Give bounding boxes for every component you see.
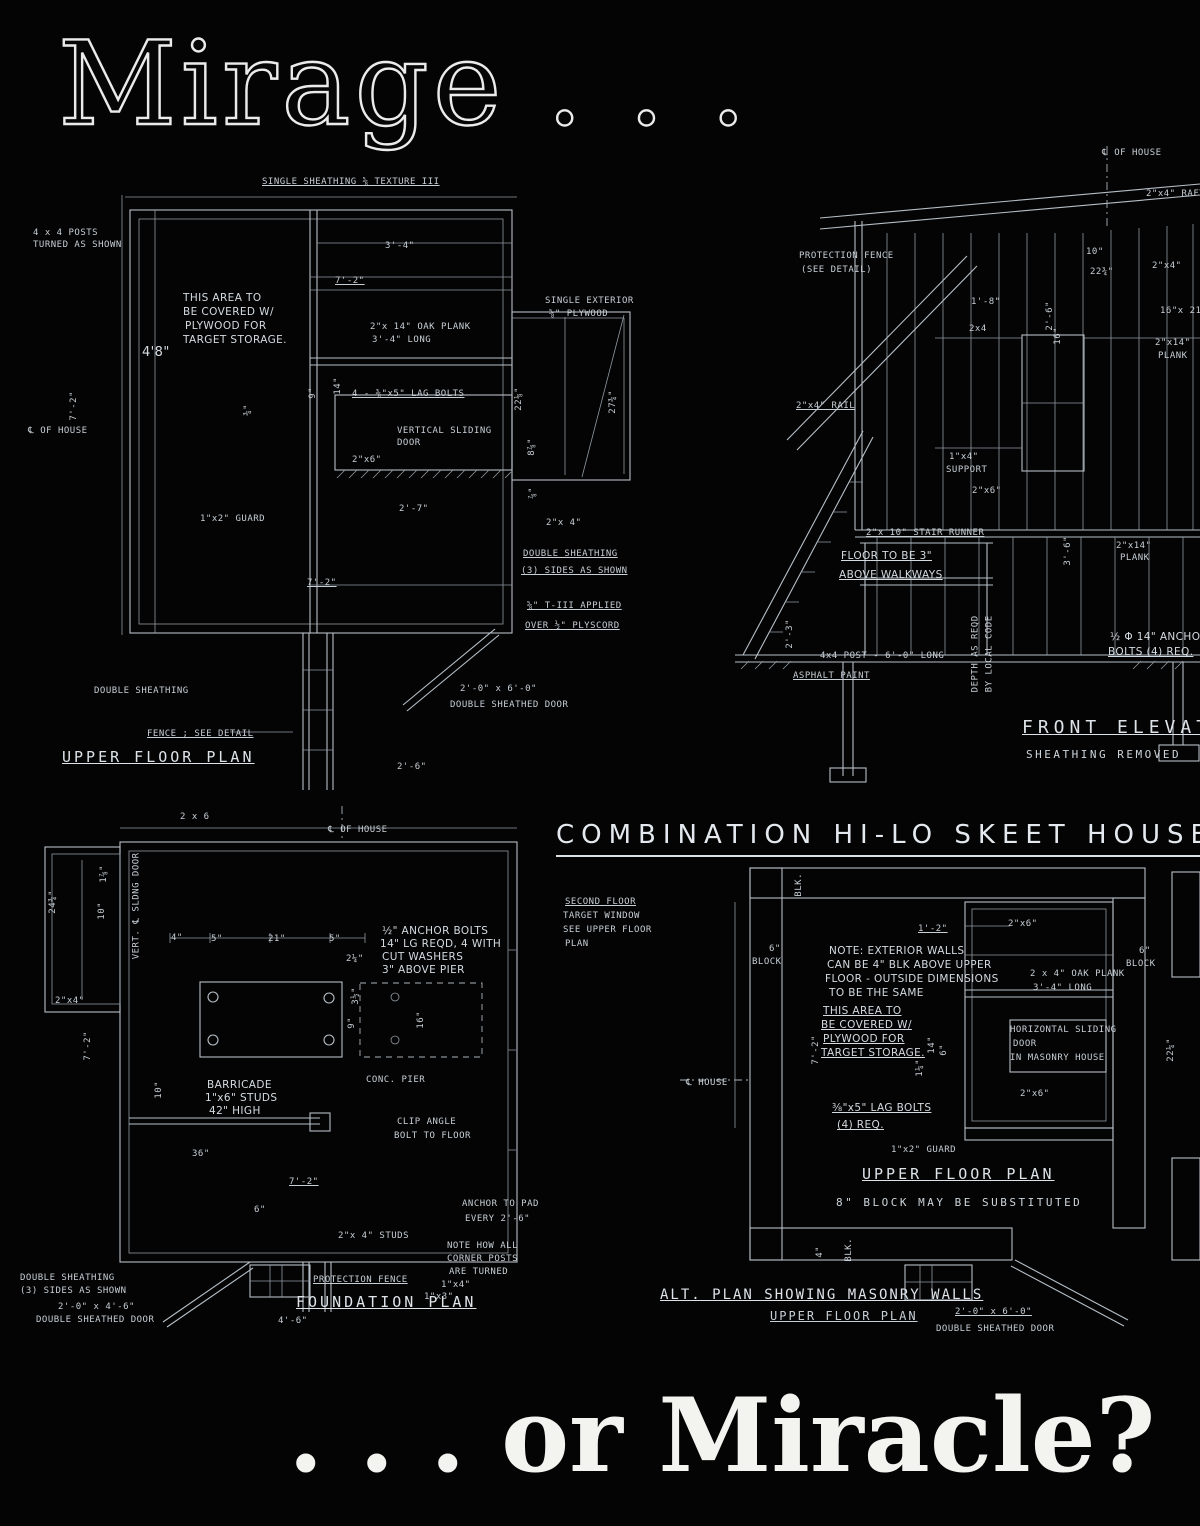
annotation-label: PROTECTION FENCE xyxy=(799,251,894,263)
annotation-label: 2¼" xyxy=(346,954,364,966)
annotation-label: 5" xyxy=(329,934,341,946)
annotation-label: (SEE DETAIL) xyxy=(801,265,872,277)
foundation-plan-drawing xyxy=(20,800,665,1340)
annotation-label: 4'8" xyxy=(142,345,170,362)
annotation-label: 2"x4" RAFT xyxy=(1146,189,1200,201)
annotation-label: ABOVE WALKWAYS xyxy=(839,569,943,583)
annotation-label: 7'-2" xyxy=(307,578,337,590)
annotation-label: EVERY 2'-6" xyxy=(465,1214,530,1226)
annotation-label: 3'-4" LONG xyxy=(1033,983,1092,995)
annotation-label: 10" xyxy=(1086,247,1104,259)
annotation-label: TO BE THE SAME xyxy=(829,987,924,1001)
annotation-label: 27¾" xyxy=(608,390,620,414)
annotation-label: 3'-6" xyxy=(1063,536,1075,566)
annotation-label: 4x4 POST - 6'-0" LONG xyxy=(820,651,944,663)
annotation-label: DOUBLE SHEATHED DOOR xyxy=(36,1315,154,1327)
annotation-label: BLK. xyxy=(844,1238,856,1262)
annotation-label: 22¼" xyxy=(1166,1038,1178,1062)
annotation-label: TARGET STORAGE. xyxy=(183,334,287,348)
annotation-label: 7'-2" xyxy=(335,276,365,288)
annotation-label: 14" xyxy=(333,377,345,395)
page-title-top: Mirage . . . xyxy=(46,2,766,162)
annotation-label: 1"x2" GUARD xyxy=(200,514,265,526)
annotation-label: CORNER POSTS xyxy=(447,1254,518,1266)
annotation-label: FENCE ; SEE DETAIL xyxy=(147,729,254,741)
annotation-label: 9" xyxy=(308,387,320,399)
annotation-label: 2'-0" x 6'-0" xyxy=(460,684,537,696)
annotation-label: ℄ HOUSE xyxy=(686,1078,728,1090)
annotation-label: DOUBLE SHEATHING xyxy=(523,549,618,561)
annotation-label: 16" xyxy=(1053,327,1065,345)
annotation-label: 36" xyxy=(192,1149,210,1161)
annotation-label: 2'-7" xyxy=(399,504,429,516)
annotation-label: SUPPORT xyxy=(946,465,987,477)
page-title-bottom: . . . or Miracle? xyxy=(288,1376,1155,1496)
annotation-label: 3½" xyxy=(351,987,363,1005)
annotation-label: SINGLE EXTERIOR xyxy=(545,296,634,308)
caption-upper-floor-plan: UPPER FLOOR PLAN xyxy=(62,748,255,768)
annotation-label: ¾" xyxy=(243,404,255,416)
annotation-label: BLOCK xyxy=(1126,959,1156,971)
annotation-label: TARGET STORAGE. xyxy=(821,1047,925,1061)
annotation-label: 24¾" xyxy=(48,890,60,914)
annotation-label: 14" LG REQD, 4 WITH xyxy=(380,938,501,952)
caption-front-elevation: FRONT ELEVATION xyxy=(1022,716,1200,739)
annotation-label: 2"x14" xyxy=(1116,541,1152,553)
blueprint-page: Mirage . . . xyxy=(0,0,1200,1526)
annotation-label: IN MASONRY HOUSE xyxy=(1010,1053,1105,1065)
annotation-label: PLANK xyxy=(1120,553,1150,565)
annotation-label: 8⅞" xyxy=(527,438,539,456)
annotation-label: 21" xyxy=(268,934,286,946)
annotation-label: 2"x6" xyxy=(352,455,382,467)
annotation-label: 3" ABOVE PIER xyxy=(382,964,465,978)
annotation-label: 2"x4" xyxy=(55,996,85,1008)
annotation-label: CAN BE 4" BLK ABOVE UPPER xyxy=(827,959,992,973)
annotation-label: 2'-0" x 4'-6" xyxy=(58,1302,135,1314)
annotation-label: 4'-6" xyxy=(278,1316,308,1328)
annotation-label: SINGLE SHEATHING ⅝ TEXTURE III xyxy=(262,177,440,189)
annotation-label: ASPHALT PAINT xyxy=(793,671,870,683)
subcaption-sheathing-removed: SHEATHING REMOVED xyxy=(1026,748,1181,762)
annotation-label: 16" xyxy=(416,1011,428,1029)
annotation-label: 16"x 21¾" D xyxy=(1160,306,1200,318)
annotation-label: BLOCK xyxy=(752,957,782,969)
drawing-heading: COMBINATION HI-LO SKEET HOUSE xyxy=(556,820,1200,857)
annotation-label: VERT. ℄ SLDNG DOOR xyxy=(132,852,144,959)
annotation-label: NOTE: EXTERIOR WALLS xyxy=(829,945,964,959)
annotation-label: 9" xyxy=(347,1017,359,1029)
annotation-label: 10" xyxy=(154,1081,166,1099)
annotation-label: 1"x6" STUDS xyxy=(205,1092,278,1106)
annotation-label: 2"x 4" xyxy=(546,518,582,530)
annotation-label: ½" ANCHOR BOLTS xyxy=(382,925,488,939)
annotation-label: PLAN xyxy=(565,939,589,951)
annotation-label: 2 x 4" OAK PLANK xyxy=(1030,969,1125,981)
annotation-label: 1"x4" xyxy=(441,1280,471,1292)
annotation-label: 2x4 xyxy=(969,324,987,336)
annotation-label: 6" xyxy=(1139,946,1151,958)
annotation-label: (3) SIDES AS SHOWN xyxy=(521,566,628,578)
subcaption-upper-floor-plan: UPPER FLOOR PLAN xyxy=(770,1309,918,1325)
annotation-label: BE COVERED W/ xyxy=(821,1019,912,1033)
annotation-label: 2"x 14" OAK PLANK xyxy=(370,322,471,334)
annotation-label: ⅞" xyxy=(528,487,540,499)
annotation-label: BARRICADE xyxy=(207,1079,272,1093)
annotation-label: 7'-2" xyxy=(83,1031,95,1061)
annotation-label: DOOR xyxy=(1013,1039,1037,1051)
annotation-label: 2"x4" xyxy=(1152,261,1182,273)
annotation-label: PLYWOOD FOR xyxy=(823,1033,905,1047)
annotation-label: 2"x14" xyxy=(1155,338,1191,350)
annotation-label: 1"x2" GUARD xyxy=(891,1145,956,1157)
annotation-label: BOLT TO FLOOR xyxy=(394,1131,471,1143)
annotation-label: 2"x6" xyxy=(1008,919,1038,931)
annotation-label: 22¾" xyxy=(1090,267,1114,279)
annotation-label: PLYWOOD FOR xyxy=(185,320,267,334)
annotation-label: 7'-2" xyxy=(289,1177,319,1189)
annotation-label: 1'-8" xyxy=(971,297,1001,309)
annotation-label: CUT WASHERS xyxy=(382,951,463,965)
annotation-label: 1"x4" xyxy=(949,452,979,464)
annotation-label: 4 - ⅜"x5" LAG BOLTS xyxy=(352,389,464,401)
annotation-label: 4" xyxy=(171,933,183,945)
annotation-label: DOOR xyxy=(397,438,421,450)
annotation-label: THIS AREA TO xyxy=(823,1005,902,1019)
annotation-label: 10" xyxy=(97,902,109,920)
annotation-label: BY LOCAL CODE xyxy=(985,615,997,692)
page-title-top-text: Mirage . . . xyxy=(58,17,751,152)
annotation-label: CLIP ANGLE xyxy=(397,1117,456,1129)
annotation-label: 2'-6" xyxy=(397,762,427,774)
annotation-label: DOUBLE SHEATHING xyxy=(94,686,189,698)
upper-floor-plan-drawing xyxy=(25,165,670,795)
annotation-label: HORIZONTAL SLIDING xyxy=(1010,1025,1117,1037)
annotation-label: DOUBLE SHEATHING xyxy=(20,1273,115,1285)
annotation-label: ANCHOR TO PAD xyxy=(462,1199,539,1211)
annotation-label: 2"x 4" STUDS xyxy=(338,1231,409,1243)
annotation-label: 6" xyxy=(254,1205,266,1217)
annotation-label: ⅝" PLYWOOD xyxy=(549,309,608,321)
annotation-label: ⅝" T-III APPLIED xyxy=(527,601,622,613)
annotation-label: ℄ OF HOUSE xyxy=(1102,148,1162,160)
annotation-label: ℄ OF HOUSE xyxy=(28,426,88,438)
annotation-label: 5" xyxy=(211,934,223,946)
annotation-label: 22⅛" xyxy=(514,387,526,411)
annotation-label: 1'-2" xyxy=(918,924,948,936)
annotation-label: OVER ½" PLYSCORD xyxy=(525,621,620,633)
caption-alt-upper-floor-plan: UPPER FLOOR PLAN xyxy=(862,1165,1055,1185)
annotation-label: DEPTH AS REQD xyxy=(971,615,983,692)
annotation-label: 1¼" xyxy=(915,1059,927,1077)
annotation-label: ARE TURNED xyxy=(449,1267,508,1279)
annotation-label: 14" xyxy=(927,1036,939,1054)
annotation-label: 42" HIGH xyxy=(209,1105,261,1119)
annotation-label: 1⅞" xyxy=(99,865,111,883)
annotation-label: BLK. xyxy=(794,873,806,897)
annotation-label: 6" xyxy=(939,1044,951,1056)
annotation-label: THIS AREA TO xyxy=(183,292,262,306)
annotation-label: PROTECTION FENCE xyxy=(313,1275,408,1287)
annotation-label: 7'-2" xyxy=(69,391,81,421)
annotation-label: DOUBLE SHEATHED DOOR xyxy=(450,700,568,712)
annotation-label: 7'-2" xyxy=(811,1035,823,1065)
annotation-label: BE COVERED W/ xyxy=(183,306,274,320)
annotation-label: 6" xyxy=(769,944,781,956)
annotation-label: DOUBLE SHEATHED DOOR xyxy=(936,1324,1054,1336)
annotation-label: PLANK xyxy=(1158,351,1188,363)
annotation-label: 2 x 6 xyxy=(180,812,210,824)
caption-foundation-plan: FOUNDATION PLAN xyxy=(296,1293,476,1313)
annotation-label: SECOND FLOOR xyxy=(565,897,636,909)
note-block-substituted: 8" BLOCK MAY BE SUBSTITUTED xyxy=(836,1196,1082,1210)
caption-alt-plan-masonry: ALT. PLAN SHOWING MASONRY WALLS xyxy=(660,1286,983,1304)
annotation-label: BOLTS (4) REQ. xyxy=(1108,646,1193,660)
annotation-label: 3'-4" xyxy=(385,241,415,253)
annotation-label: (4) REQ. xyxy=(837,1119,884,1133)
annotation-label: CONC. PIER xyxy=(366,1075,425,1087)
annotation-label: 2"x6" xyxy=(972,486,1002,498)
annotation-label: TARGET WINDOW xyxy=(563,911,640,923)
annotation-label: VERTICAL SLIDING xyxy=(397,426,492,438)
annotation-label: TURNED AS SHOWN xyxy=(33,240,122,252)
annotation-label: SEE UPPER FLOOR xyxy=(563,925,652,937)
annotation-label: (3) SIDES AS SHOWN xyxy=(20,1286,127,1298)
annotation-label: 4" xyxy=(815,1246,827,1258)
annotation-label: ½ Φ 14" ANCHOR xyxy=(1110,631,1200,645)
annotation-label: 2"x6" xyxy=(1020,1089,1050,1101)
annotation-label: 2"x 10" STAIR RUNNER xyxy=(866,528,984,540)
annotation-label: 2'-3" xyxy=(785,619,797,649)
annotation-label: 4 x 4 POSTS xyxy=(33,228,98,240)
annotation-label: 2"x4" RAIL xyxy=(796,401,855,413)
annotation-label: 3'-4" LONG xyxy=(372,335,431,347)
annotation-label: ℄ OF HOUSE xyxy=(328,825,388,837)
annotation-label: FLOOR - OUTSIDE DIMENSIONS xyxy=(825,973,999,987)
annotation-label: NOTE HOW ALL xyxy=(447,1241,518,1253)
annotation-label: 2'-0" x 6'-0" xyxy=(955,1307,1032,1319)
annotation-label: FLOOR TO BE 3" xyxy=(841,550,932,564)
annotation-label: ⅜"x5" LAG BOLTS xyxy=(832,1102,931,1116)
